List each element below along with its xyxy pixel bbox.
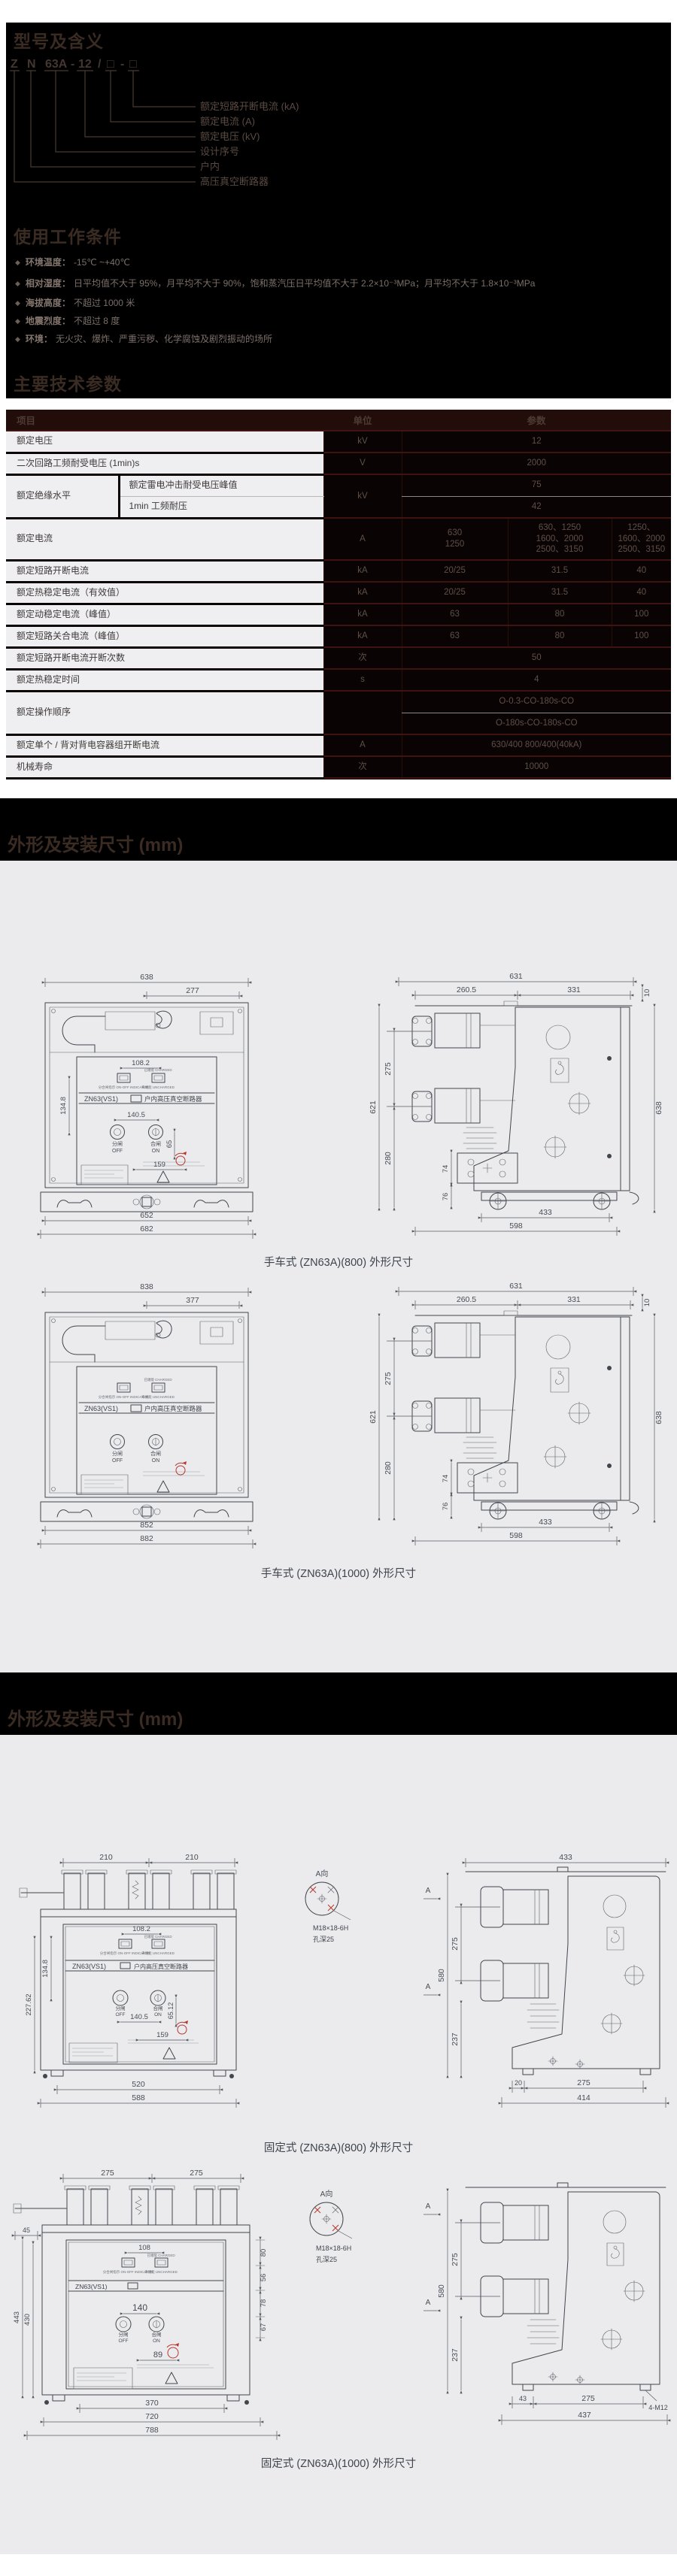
svg-text:□: □ [107, 58, 114, 71]
drawing-handcart-1000-side: 631 260.5 331 10 621 275 280 638 74 76 4… [354, 1278, 669, 1557]
svg-text:额定短路开断电流 (kA): 额定短路开断电流 (kA) [200, 101, 299, 112]
condition-item: ◆地震烈度：不超过 8 度 [15, 314, 120, 327]
svg-text:OFF: OFF [112, 1149, 123, 1154]
bolt-detail-marks [310, 1887, 351, 1920]
breaker-front-details [50, 1007, 244, 1209]
spec-unit: kA [323, 625, 402, 647]
dimension-lines [424, 2192, 667, 2425]
conditions-section-title: 使用工作条件 [14, 222, 122, 248]
svg-text:277: 277 [186, 986, 199, 995]
spec-subitem: 额定雷电冲击耐受电压峰值 [119, 474, 323, 496]
nameplate-text-lines [72, 2040, 199, 2056]
svg-text:414: 414 [577, 2093, 590, 2102]
svg-text:分闸: 分闸 [116, 2005, 126, 2011]
diamond-bullet-icon: ◆ [15, 259, 20, 266]
svg-text:未储能 UNCHARGED: 未储能 UNCHARGED [141, 1085, 175, 1090]
breaker-front-details [50, 1317, 244, 1518]
svg-text:额定电流 (A): 额定电流 (A) [200, 116, 255, 127]
spec-item: 额定操作顺序 [6, 691, 323, 734]
svg-text:134.8: 134.8 [41, 1960, 50, 1978]
spec-value: 10000 [402, 756, 671, 778]
svg-text:A: A [426, 1983, 431, 1991]
svg-text:159: 159 [156, 2031, 168, 2039]
diamond-bullet-icon: ◆ [15, 299, 20, 307]
spec-item: 额定热稳定时间 [6, 669, 323, 691]
svg-text:□: □ [129, 58, 137, 71]
svg-text:-: - [120, 58, 124, 71]
svg-text:520: 520 [132, 2080, 145, 2089]
svg-text:未储能 UNCHARGED: 未储能 UNCHARGED [144, 2269, 178, 2275]
svg-text:孔深25: 孔深25 [316, 2256, 337, 2263]
drawing-fixed-1000-front: 275 275 45 108 443 430 80 56 78 67 140 8… [8, 2166, 369, 2446]
spec-value: 20/25 [402, 582, 508, 604]
svg-text:74: 74 [442, 1475, 450, 1483]
svg-text:65.12: 65.12 [167, 2002, 175, 2020]
spec-value: 31.5 [508, 560, 612, 582]
svg-text:孔深25: 孔深25 [313, 1936, 334, 1943]
spec-value: 20/25 [402, 560, 508, 582]
svg-text:621: 621 [369, 1100, 378, 1114]
svg-text:M18×18-6H: M18×18-6H [313, 1924, 348, 1932]
drawing-caption: 固定式 (ZN63A)(800) 外形尺寸 [0, 2139, 677, 2155]
spec-value: 1250、 1600、2000 2500、3150 [612, 518, 671, 560]
breaker-side-details [527, 2205, 645, 2384]
drawing-fixed-1000-side: A A 580 275 237 43 275 4-M12 437 [417, 2166, 677, 2446]
drawing-caption: 手车式 (ZN63A)(800) 外形尺寸 [0, 1254, 677, 1270]
svg-text:M18×18-6H: M18×18-6H [316, 2245, 351, 2252]
svg-text:108.2: 108.2 [132, 1059, 150, 1067]
table-row: 额定短路开断电流开断次数 次 50 [6, 647, 671, 669]
dimensions-section-title: 外形及安装尺寸 (mm) [8, 830, 183, 856]
nameplate-text-lines [84, 1472, 205, 1488]
diamond-bullet-icon: ◆ [15, 280, 20, 287]
spec-unit: 次 [323, 756, 402, 778]
svg-text:638: 638 [654, 1101, 663, 1115]
model-designation-diagram: Z N 63A - 12 / □ - □ 额定短路开断电流 (kA) 额定电流 … [6, 54, 548, 197]
spec-unit: kA [323, 560, 402, 582]
svg-text:78: 78 [260, 2299, 268, 2308]
drawing-handcart-800-front: 638 277 108.2 134.8 140.5 65 159 652 682… [30, 968, 263, 1248]
spec-value: 630 1250 [402, 518, 508, 560]
table-row: 额定热稳定时间 s 4 [6, 669, 671, 691]
model-diagram-lines [10, 71, 196, 182]
diamond-bullet-icon: ◆ [15, 317, 20, 325]
svg-text:67: 67 [260, 2323, 268, 2332]
svg-text:140.5: 140.5 [130, 2013, 148, 2021]
condition-text: 日平均值不大于 95%，月平均不大于 90%，饱和蒸汽压日平均值不大于 2.2×… [74, 278, 535, 289]
svg-text:76: 76 [442, 1193, 450, 1201]
svg-text:275: 275 [384, 1062, 393, 1076]
svg-text:598: 598 [509, 1531, 523, 1540]
table-row: 额定短路关合电流（峰值） kA 63 80 100 [6, 625, 671, 647]
breaker-side-outline [466, 1867, 666, 2075]
svg-text:N: N [27, 58, 36, 71]
svg-text:377: 377 [186, 1296, 199, 1305]
svg-text:A: A [426, 2299, 431, 2307]
spec-value: 40 [612, 560, 671, 582]
svg-text:ZN63(VS1): ZN63(VS1) [72, 1963, 106, 1970]
header-param: 参数 [402, 410, 671, 431]
dimension-labels: 631 260.5 331 10 621 275 280 638 74 76 4… [369, 972, 663, 1230]
breaker-front-outline [21, 1873, 338, 2076]
svg-text:A向: A向 [316, 1869, 329, 1878]
breaker-front-outline [15, 2189, 343, 2401]
svg-text:598: 598 [509, 1221, 523, 1230]
spec-unit: kV [323, 474, 402, 518]
spec-value: O-0.3-CO-180s-CO [402, 691, 671, 713]
spec-item: 额定绝缘水平 [6, 474, 119, 518]
bolt-dot [607, 1366, 612, 1370]
table-row: 额定热稳定电流（有效值） kA 20/25 31.5 40 [6, 582, 671, 604]
svg-text:ON: ON [152, 1149, 160, 1154]
drawing-caption: 手车式 (ZN63A)(1000) 外形尺寸 [0, 1565, 677, 1581]
specs-section-title: 主要技术参数 [14, 370, 122, 395]
svg-text:433: 433 [559, 1853, 572, 1862]
svg-text:134.8: 134.8 [59, 1097, 68, 1115]
spec-unit: A [323, 734, 402, 756]
svg-text:已储能 CHARGED: 已储能 CHARGED [144, 1377, 172, 1382]
svg-text:210: 210 [185, 1853, 199, 1862]
svg-text:未储能 UNCHARGED: 未储能 UNCHARGED [141, 1951, 175, 1956]
svg-text:80: 80 [260, 2249, 268, 2257]
svg-text:275: 275 [577, 2078, 590, 2087]
svg-text:852: 852 [140, 1521, 153, 1530]
condition-label: 环境温度： [26, 257, 71, 268]
svg-text:A: A [426, 2202, 431, 2211]
svg-text:838: 838 [140, 1282, 153, 1291]
svg-text:合闸: 合闸 [152, 2331, 162, 2338]
condition-text: 不超过 8 度 [74, 316, 120, 326]
table-row: 额定绝缘水平 额定雷电冲击耐受电压峰值 kV 75 [6, 474, 671, 496]
spec-value: 630、1250 1600、2000 2500、3150 [508, 518, 612, 560]
svg-text:89: 89 [153, 2350, 162, 2360]
svg-text:ZN63(VS1): ZN63(VS1) [84, 1095, 118, 1103]
svg-text:108.2: 108.2 [132, 1925, 150, 1933]
condition-item: ◆相对湿度：日平均值不大于 95%，月平均不大于 90%，饱和蒸汽压日平均值不大… [15, 277, 535, 289]
table-header-row: 项目 单位 参数 [6, 410, 671, 431]
svg-text:652: 652 [140, 1211, 153, 1220]
svg-text:580: 580 [437, 1969, 446, 1982]
breaker-side-details [527, 1890, 645, 2069]
svg-text:63A: 63A [45, 58, 68, 71]
svg-text:275: 275 [101, 2169, 114, 2178]
svg-text:443: 443 [13, 2311, 21, 2323]
svg-text:882: 882 [140, 1534, 153, 1543]
red-rotation-icon [167, 2343, 179, 2358]
catalog-page: 型号及含义 Z N 63A - 12 / □ - □ 额定短路开断电流 (kA)… [0, 0, 677, 2576]
spec-item: 额定电流 [6, 518, 323, 560]
svg-text:已储能 CHARGED: 已储能 CHARGED [144, 1934, 172, 1939]
spec-unit: A [323, 518, 402, 560]
svg-text:ON: ON [153, 2338, 160, 2344]
svg-text:275: 275 [384, 1372, 393, 1385]
bolt-dot [43, 2074, 47, 2078]
svg-text:户内高压真空断路器: 户内高压真空断路器 [134, 1963, 188, 1970]
spec-item: 额定短路关合电流（峰值） [6, 625, 323, 647]
condition-item: ◆海拔高度：不超过 1000 米 [15, 296, 135, 309]
svg-text:437: 437 [578, 2411, 591, 2420]
svg-text:237: 237 [451, 2348, 460, 2362]
spec-unit: 次 [323, 647, 402, 669]
svg-text:76: 76 [442, 1503, 450, 1511]
bolt-dot [607, 1056, 612, 1061]
nameplate-text-lines [84, 1162, 205, 1178]
svg-text:631: 631 [509, 972, 523, 981]
svg-text:140: 140 [132, 2302, 147, 2313]
bolt-dot [229, 2074, 234, 2078]
svg-text:280: 280 [384, 1461, 393, 1475]
svg-text:331: 331 [567, 985, 581, 994]
table-row: 额定短路开断电流 kA 20/25 31.5 40 [6, 560, 671, 582]
svg-text:OFF: OFF [119, 2338, 129, 2344]
spec-item: 额定短路开断电流开断次数 [6, 647, 323, 669]
spec-value: 63 [402, 625, 508, 647]
svg-text:4-M12: 4-M12 [648, 2404, 668, 2411]
spec-value: 75 [402, 474, 671, 496]
table-row: 额定动稳定电流（峰值） kA 63 80 100 [6, 604, 671, 625]
spec-value: O-180s-CO-180s-CO [402, 713, 671, 734]
svg-text:275: 275 [451, 1937, 460, 1951]
dimensions-banner-1: 外形及安装尺寸 (mm) [0, 798, 677, 861]
dimension-labels: 210 210 108.2 134.8 227.62 140.5 65.12 1… [25, 1853, 348, 2102]
svg-text:ZN63(VS1): ZN63(VS1) [75, 2283, 108, 2290]
spec-value: 31.5 [508, 582, 612, 604]
svg-text:45: 45 [23, 2226, 30, 2234]
svg-text:331: 331 [567, 1295, 581, 1304]
breaker-front-outline [41, 1003, 253, 1212]
breaker-side-details [413, 1001, 611, 1209]
spec-value: 100 [612, 625, 671, 647]
bolt-dot [44, 2400, 49, 2405]
svg-text:433: 433 [539, 1208, 552, 1217]
svg-text:10: 10 [643, 1299, 651, 1307]
model-code: Z N 63A - 12 / □ - □ [11, 58, 137, 71]
table-row: 二次回路工频耐受电压 (1min)s V 2000 [6, 453, 671, 474]
bolt-dot [244, 2400, 249, 2405]
dimensions-banner-2: 外形及安装尺寸 (mm) [0, 1672, 677, 1735]
condition-text: 无火灾、爆炸、严重污秽、化学腐蚀及剧烈振动的场所 [56, 334, 272, 344]
condition-label: 海拔高度： [26, 298, 71, 308]
spec-value: 2000 [402, 453, 671, 474]
svg-text:10: 10 [643, 989, 651, 997]
svg-text:275: 275 [581, 2394, 595, 2403]
spec-unit: kA [323, 604, 402, 625]
svg-text:ZN63(VS1): ZN63(VS1) [84, 1405, 118, 1412]
breaker-side-outline [412, 1315, 639, 1519]
svg-text:638: 638 [140, 973, 153, 982]
condition-text: 不超过 1000 米 [74, 298, 135, 308]
table-row: 额定操作顺序 O-0.3-CO-180s-CO [6, 691, 671, 713]
drawing-caption: 固定式 (ZN63A)(1000) 外形尺寸 [0, 2455, 677, 2471]
spec-unit: kV [323, 431, 402, 453]
spec-subitem: 1min 工频耐压 [119, 496, 323, 518]
svg-text:12: 12 [78, 58, 92, 71]
svg-text:638: 638 [654, 1411, 663, 1424]
svg-text:65: 65 [165, 1140, 174, 1149]
drawing-handcart-800-side: 631 260.5 331 10 621 275 280 638 74 76 4… [354, 968, 669, 1248]
bolt-dot [607, 1464, 612, 1468]
nameplate-text-lines [77, 2365, 214, 2381]
spec-value: 50 [402, 647, 671, 669]
spec-item: 额定单个 / 背对背电容器组开断电流 [6, 734, 323, 756]
spec-value: 80 [508, 604, 612, 625]
drawing-fixed-800-side: 433 A A 580 275 237 20 275 414 [417, 1851, 677, 2130]
svg-text:A: A [426, 1887, 431, 1895]
red-rotation-icon [175, 1152, 187, 1165]
spec-value: 40 [612, 582, 671, 604]
spec-table: 项目 单位 参数 额定电压 kV 12 二次回路工频耐受电压 (1min)s V… [6, 410, 671, 779]
table-row: 额定电流 A 630 1250 630、1250 1600、2000 2500、… [6, 518, 671, 560]
svg-text:720: 720 [145, 2412, 159, 2421]
spec-value: 100 [612, 604, 671, 625]
spec-item: 额定电压 [6, 431, 323, 453]
svg-text:合闸: 合闸 [153, 2005, 163, 2011]
spec-value: 42 [402, 496, 671, 518]
svg-text:-: - [71, 58, 74, 71]
svg-text:275: 275 [451, 2253, 460, 2266]
table-row: 机械寿命 次 10000 [6, 756, 671, 778]
svg-text:580: 580 [437, 2284, 446, 2298]
header-item: 项目 [6, 410, 323, 431]
condition-text: -15℃ ~+40℃ [74, 257, 130, 268]
svg-text:户内: 户内 [200, 161, 220, 172]
svg-text:74: 74 [442, 1165, 450, 1173]
spec-value: 63 [402, 604, 508, 625]
svg-text:合闸: 合闸 [150, 1450, 161, 1457]
svg-text:A向: A向 [320, 2189, 333, 2199]
svg-text:280: 280 [384, 1152, 393, 1165]
spec-unit: s [323, 669, 402, 691]
dimension-labels: A A 580 275 237 43 275 4-M12 437 [426, 2202, 668, 2420]
svg-text:分闸: 分闸 [112, 1140, 123, 1147]
svg-text:430: 430 [23, 2314, 32, 2326]
svg-text:合闸: 合闸 [150, 1140, 161, 1147]
spec-item: 额定热稳定电流（有效值） [6, 582, 323, 604]
svg-text:OFF: OFF [116, 2012, 126, 2018]
breaker-side-outline [412, 1006, 639, 1209]
svg-text:433: 433 [539, 1518, 552, 1527]
svg-text:621: 621 [369, 1410, 378, 1424]
model-section-title: 型号及含义 [14, 27, 104, 53]
svg-text:已储能 CHARGED: 已储能 CHARGED [147, 2253, 175, 2258]
spec-item: 二次回路工频耐受电压 (1min)s [6, 453, 323, 474]
svg-text:已储能 CHARGED: 已储能 CHARGED [144, 1067, 172, 1073]
spec-value: 12 [402, 431, 671, 453]
svg-text:额定电压 (kV): 额定电压 (kV) [200, 131, 260, 142]
svg-text:未储能 UNCHARGED: 未储能 UNCHARGED [141, 1394, 175, 1400]
table-row: 额定电压 kV 12 [6, 431, 671, 453]
dimension-labels: 631 260.5 331 10 621 275 280 638 74 76 4… [369, 1282, 663, 1540]
spec-value: 4 [402, 669, 671, 691]
svg-text:ON: ON [154, 2012, 162, 2018]
diamond-bullet-icon: ◆ [15, 335, 20, 343]
svg-text:631: 631 [509, 1282, 523, 1291]
spec-value: 630/400 800/400(40kA) [402, 734, 671, 756]
header-unit: 单位 [323, 410, 402, 431]
condition-label: 地震烈度： [26, 316, 71, 326]
svg-text:分闸: 分闸 [112, 1450, 123, 1457]
spec-item: 额定动稳定电流（峰值） [6, 604, 323, 625]
condition-item: ◆环境：无火灾、爆炸、严重污秽、化学腐蚀及剧烈振动的场所 [15, 332, 272, 345]
svg-text:43: 43 [519, 2395, 527, 2402]
spec-item: 机械寿命 [6, 756, 323, 778]
svg-text:588: 588 [132, 2093, 145, 2102]
breaker-front-outline [41, 1312, 253, 1521]
svg-text:高压真空断路器: 高压真空断路器 [200, 176, 269, 187]
svg-text:260.5: 260.5 [457, 985, 476, 994]
svg-text:210: 210 [99, 1853, 113, 1862]
spec-unit: V [323, 453, 402, 474]
breaker-side-outline [466, 2183, 666, 2390]
breaker-side-details [413, 1311, 611, 1519]
svg-text:159: 159 [153, 1161, 165, 1169]
condition-item: ◆环境温度：-15℃ ~+40℃ [15, 256, 130, 268]
red-rotation-icon [177, 2021, 188, 2034]
spec-unit [323, 691, 402, 734]
table-row: 额定单个 / 背对背电容器组开断电流 A 630/400 800/400(40k… [6, 734, 671, 756]
svg-text:275: 275 [190, 2169, 203, 2178]
svg-text:370: 370 [145, 2399, 159, 2408]
svg-text:Z: Z [11, 58, 18, 71]
svg-text:设计序号: 设计序号 [200, 146, 239, 157]
model-labels: 额定短路开断电流 (kA) 额定电流 (A) 额定电压 (kV) 设计序号 户内… [200, 101, 299, 187]
dimensions-section-title: 外形及安装尺寸 (mm) [8, 1704, 183, 1730]
svg-text:788: 788 [145, 2426, 159, 2435]
svg-text:56: 56 [260, 2274, 268, 2282]
drawing-handcart-1000-front: 838 377 852 882 ZN63(VS1) 户内高压真空断路器 分闸 O… [30, 1278, 263, 1557]
svg-text:户内高压真空断路器: 户内高压真空断路器 [144, 1405, 202, 1412]
red-rotation-icon [175, 1461, 187, 1475]
svg-text:分闸: 分闸 [119, 2331, 129, 2338]
svg-text:/: / [98, 58, 102, 71]
svg-text:ON: ON [152, 1458, 160, 1464]
svg-text:140.5: 140.5 [127, 1111, 145, 1119]
spec-unit: kA [323, 582, 402, 604]
svg-text:237: 237 [451, 2033, 460, 2046]
svg-text:户内高压真空断路器: 户内高压真空断路器 [144, 1095, 202, 1103]
condition-label: 相对湿度： [26, 278, 71, 289]
svg-text:227.62: 227.62 [25, 1993, 33, 2015]
drawing-fixed-800-front: 210 210 108.2 134.8 227.62 140.5 65.12 1… [15, 1851, 369, 2130]
svg-text:682: 682 [140, 1224, 153, 1234]
svg-text:108: 108 [138, 2244, 150, 2252]
svg-text:20: 20 [515, 2079, 522, 2087]
svg-text:OFF: OFF [112, 1458, 123, 1464]
bolt-dot [607, 1154, 612, 1158]
spec-value: 80 [508, 625, 612, 647]
condition-label: 环境： [26, 334, 53, 344]
spec-item: 额定短路开断电流 [6, 560, 323, 582]
svg-text:260.5: 260.5 [457, 1295, 476, 1304]
